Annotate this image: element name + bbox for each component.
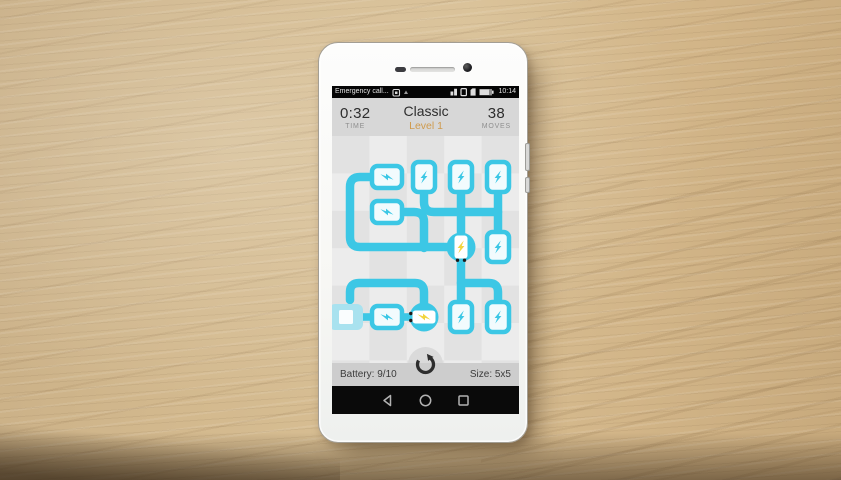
battery-tile-r5c5[interactable] bbox=[487, 302, 509, 332]
home-icon bbox=[420, 395, 430, 405]
battery-tile-r1c4[interactable] bbox=[450, 162, 472, 192]
charger-node-bottom[interactable] bbox=[409, 303, 438, 332]
reload-icon bbox=[418, 354, 434, 373]
back-button[interactable] bbox=[380, 393, 395, 408]
battery-tile-r5c2[interactable] bbox=[372, 306, 402, 328]
mode-block: Classic Level 1 bbox=[403, 103, 448, 132]
terminal-dot-0 bbox=[409, 312, 412, 315]
pipe-branch-r2c2[interactable] bbox=[404, 212, 424, 248]
reload-button[interactable] bbox=[412, 351, 439, 378]
status-left-text: Emergency call... bbox=[335, 86, 389, 98]
moves-block: 38 MOVES bbox=[482, 105, 511, 130]
notification-icon bbox=[392, 88, 401, 97]
status-bar: Emergency call... bbox=[332, 86, 519, 98]
timer-block: 0:32 TIME bbox=[340, 105, 370, 130]
mode-title: Classic bbox=[403, 103, 448, 119]
storage-icon bbox=[471, 88, 476, 95]
battery-tile-r3c5[interactable] bbox=[487, 232, 509, 262]
moves-value: 38 bbox=[482, 105, 511, 122]
android-nav-bar bbox=[332, 386, 519, 414]
terminal-dot-0 bbox=[456, 259, 459, 262]
moves-label: MOVES bbox=[482, 123, 511, 130]
photo-scene: Emergency call... bbox=[0, 0, 841, 480]
power-button[interactable] bbox=[525, 177, 530, 193]
home-button[interactable] bbox=[418, 393, 433, 408]
pipe-branch-row4[interactable] bbox=[461, 283, 498, 301]
pipe-arc-bottom[interactable] bbox=[350, 283, 424, 304]
smartphone: Emergency call... bbox=[318, 42, 528, 443]
battery-tile-r1c5[interactable] bbox=[487, 162, 509, 192]
pipe-r1c3-elbow[interactable] bbox=[424, 193, 461, 212]
battery-tile-r1c2[interactable] bbox=[372, 166, 402, 188]
recents-icon bbox=[459, 396, 468, 405]
battery-tile-r5c1[interactable] bbox=[332, 304, 363, 330]
battery-icon bbox=[480, 89, 494, 95]
charger-node-center[interactable] bbox=[447, 233, 476, 262]
terminal-dot-1 bbox=[409, 319, 412, 322]
volume-button[interactable] bbox=[525, 143, 530, 171]
status-dot-icon bbox=[404, 90, 408, 95]
phone-screen: Emergency call... bbox=[332, 86, 519, 414]
timer-label: TIME bbox=[340, 123, 370, 130]
earpiece-speaker bbox=[410, 67, 455, 72]
back-icon bbox=[384, 395, 391, 405]
wood-bottom-left-shadow bbox=[0, 410, 340, 480]
recents-button[interactable] bbox=[456, 393, 471, 408]
battery-count-label: Battery: 9/10 bbox=[340, 369, 397, 380]
empty-battery-hole bbox=[339, 310, 353, 324]
grid-size-label: Size: 5x5 bbox=[470, 369, 511, 380]
proximity-sensor bbox=[395, 67, 406, 72]
signal-icon bbox=[451, 89, 458, 96]
battery-tile-r2c2[interactable] bbox=[372, 201, 402, 223]
front-camera bbox=[463, 63, 472, 72]
timer-value: 0:32 bbox=[340, 105, 370, 122]
battery-tile-r1c3[interactable] bbox=[413, 162, 435, 192]
battery-tile-r5c4[interactable] bbox=[450, 302, 472, 332]
status-icons bbox=[450, 87, 496, 97]
puzzle-network bbox=[332, 136, 519, 363]
level-label: Level 1 bbox=[403, 120, 448, 132]
status-clock: 10:14 bbox=[498, 86, 516, 98]
puzzle-board[interactable] bbox=[332, 136, 519, 363]
sim-icon bbox=[461, 89, 466, 96]
game-header: 0:32 TIME Classic Level 1 38 MOVES bbox=[332, 98, 519, 136]
terminal-dot-1 bbox=[463, 259, 466, 262]
connector-nub-0 bbox=[363, 313, 371, 321]
